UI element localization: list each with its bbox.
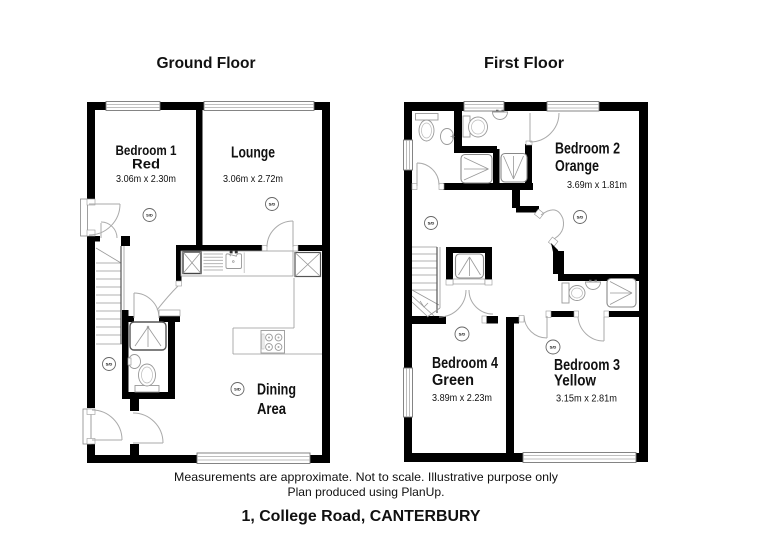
svg-text:3.69m x 1.81m: 3.69m x 1.81m xyxy=(567,180,627,191)
svg-text:3.15m x 2.81m: 3.15m x 2.81m xyxy=(556,394,617,405)
svg-text:1, College Road, CANTERBURY: 1, College Road, CANTERBURY xyxy=(242,508,482,525)
svg-text:Orange: Orange xyxy=(555,158,599,175)
svg-text:S/D: S/D xyxy=(550,345,557,350)
svg-text:Red: Red xyxy=(132,157,160,172)
svg-text:S/D: S/D xyxy=(146,213,153,218)
svg-text:Yellow: Yellow xyxy=(554,373,597,390)
svg-text:Lounge: Lounge xyxy=(231,145,275,162)
svg-text:Area: Area xyxy=(257,401,286,418)
svg-text:S/D: S/D xyxy=(269,202,276,207)
svg-text:3.06m x 2.72m: 3.06m x 2.72m xyxy=(223,174,283,185)
svg-text:S/D: S/D xyxy=(106,362,113,367)
svg-text:Bedroom 3: Bedroom 3 xyxy=(554,357,620,374)
svg-text:Bedroom 4: Bedroom 4 xyxy=(432,355,498,372)
svg-text:Plan produced using PlanUp.: Plan produced using PlanUp. xyxy=(288,485,445,499)
svg-text:S/D: S/D xyxy=(459,332,466,337)
svg-text:S/D: S/D xyxy=(234,387,241,392)
svg-text:Ground Floor: Ground Floor xyxy=(157,55,256,72)
svg-text:S/D: S/D xyxy=(577,215,584,220)
svg-text:Bedroom 2: Bedroom 2 xyxy=(555,141,620,158)
svg-text:S/D: S/D xyxy=(428,221,435,226)
svg-text:3.06m x 2.30m: 3.06m x 2.30m xyxy=(116,174,176,185)
svg-text:3.89m x 2.23m: 3.89m x 2.23m xyxy=(432,393,492,404)
svg-text:Dining: Dining xyxy=(257,382,296,399)
svg-text:Green: Green xyxy=(432,372,474,389)
svg-text:Measurements are approximate.: Measurements are approximate. Not to sca… xyxy=(174,470,558,484)
svg-text:First Floor: First Floor xyxy=(484,55,564,72)
